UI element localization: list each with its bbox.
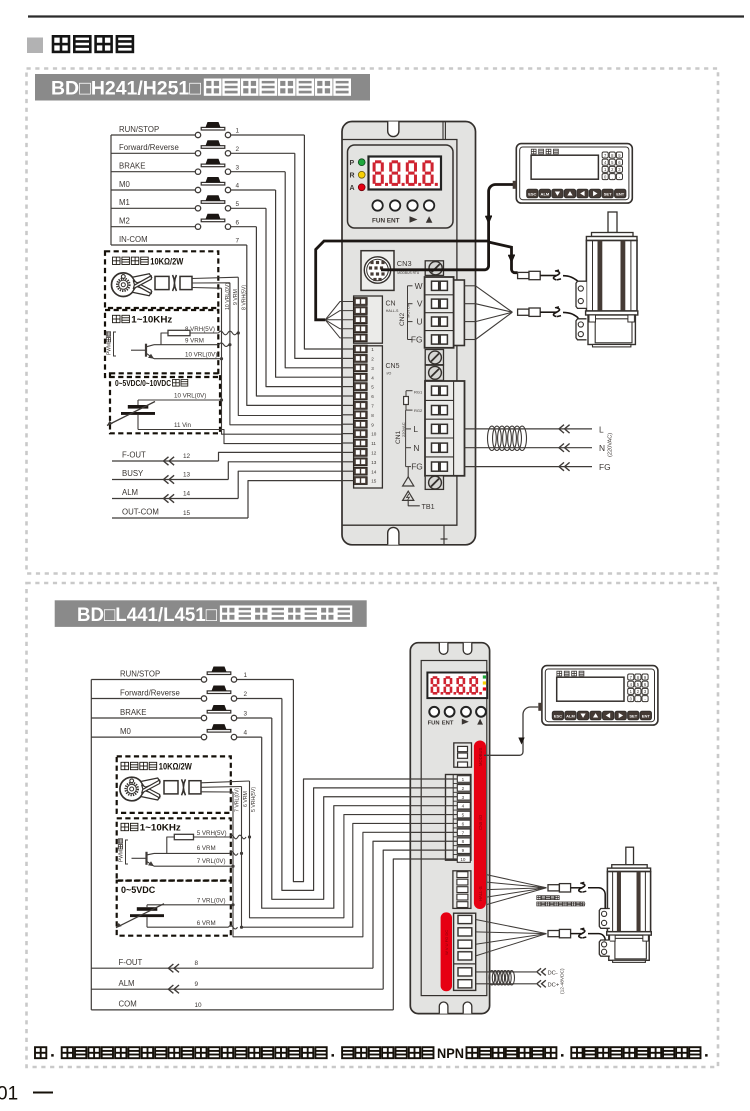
svg-text:10: 10 xyxy=(460,857,466,862)
svg-text:N: N xyxy=(599,443,605,453)
svg-text:CN5: CN5 xyxy=(386,363,400,370)
svg-text:HALL-S: HALL-S xyxy=(478,886,483,901)
svg-text:1: 1 xyxy=(244,672,248,679)
svg-text:12: 12 xyxy=(183,453,191,460)
svg-text:PWM: PWM xyxy=(119,850,125,862)
svg-text:1~10KHz: 1~10KHz xyxy=(131,315,172,325)
svg-text:FG: FG xyxy=(411,335,423,345)
svg-text:RG2: RG2 xyxy=(414,408,423,413)
svg-text:OUT-COM: OUT-COM xyxy=(122,508,159,517)
svg-text:BD□L441/L451□: BD□L441/L451□ xyxy=(77,604,217,626)
svg-text:PWM: PWM xyxy=(107,343,113,355)
svg-text:0v: 0v xyxy=(581,902,586,907)
svg-text:13: 13 xyxy=(371,460,377,465)
svg-text:7 VRL(0V): 7 VRL(0V) xyxy=(197,858,226,865)
svg-text:(12-48VDC): (12-48VDC) xyxy=(560,968,566,994)
svg-text:2: 2 xyxy=(244,691,248,698)
svg-text:10: 10 xyxy=(371,432,377,437)
svg-text:I/O: I/O xyxy=(387,371,392,375)
svg-text:14: 14 xyxy=(371,469,377,474)
svg-text:Forward/Reverse: Forward/Reverse xyxy=(119,143,179,152)
svg-text:IN-COM: IN-COM xyxy=(119,235,148,244)
svg-text:FG: FG xyxy=(411,462,423,472)
svg-text:COM: COM xyxy=(119,1000,137,1009)
svg-text:MODBUS RTU: MODBUS RTU xyxy=(397,271,420,275)
svg-text:8 VRH(5V): 8 VRH(5V) xyxy=(185,326,215,333)
svg-text:15: 15 xyxy=(371,479,377,484)
svg-text:8: 8 xyxy=(195,960,199,967)
svg-text:10: 10 xyxy=(195,1002,203,1009)
svg-text:6 VRM: 6 VRM xyxy=(197,920,216,927)
svg-text:3: 3 xyxy=(244,711,248,718)
svg-text:7: 7 xyxy=(462,830,465,835)
svg-text:01: 01 xyxy=(0,1084,18,1105)
svg-text:9: 9 xyxy=(371,422,374,427)
svg-text:10 VRL(0V): 10 VRL(0V) xyxy=(225,283,231,310)
svg-text:1: 1 xyxy=(371,347,374,352)
svg-text:MODBUS: MODBUS xyxy=(478,747,483,766)
svg-text:7 VRL(0V): 7 VRL(0V) xyxy=(235,788,241,812)
svg-text:5: 5 xyxy=(371,385,374,390)
svg-text:M1: M1 xyxy=(119,198,130,207)
svg-text:W V U FG DC: W V U FG DC xyxy=(444,930,449,955)
svg-text:ALM: ALM xyxy=(119,979,135,988)
svg-text:F-OUT: F-OUT xyxy=(119,958,143,967)
svg-text:5 VRH(5V): 5 VRH(5V) xyxy=(251,787,257,812)
svg-text:15: 15 xyxy=(183,510,191,517)
svg-text:14: 14 xyxy=(183,491,191,498)
svg-text:RUN/STOP: RUN/STOP xyxy=(119,125,159,134)
svg-text:8: 8 xyxy=(371,413,374,418)
svg-text:11: 11 xyxy=(371,441,376,446)
svg-text:DC+: DC+ xyxy=(548,983,560,989)
svg-text:F-OUT: F-OUT xyxy=(122,451,146,460)
svg-text:ENT: ENT xyxy=(442,721,454,727)
svg-text:U: U xyxy=(416,317,422,327)
svg-text:3: 3 xyxy=(236,164,240,171)
svg-text:10 VRL(0V): 10 VRL(0V) xyxy=(174,393,206,400)
svg-text:W: W xyxy=(415,281,423,291)
svg-text:220VAC: 220VAC xyxy=(401,422,406,437)
svg-text:9: 9 xyxy=(195,981,199,988)
svg-text:1~10KHz: 1~10KHz xyxy=(140,823,181,833)
svg-text:P: P xyxy=(350,160,355,167)
svg-text:4: 4 xyxy=(244,730,248,737)
svg-text:.: . xyxy=(612,174,613,179)
svg-text:0~5VDC: 0~5VDC xyxy=(121,885,156,895)
svg-text:DC-: DC- xyxy=(548,971,558,977)
svg-text:ENT: ENT xyxy=(387,218,400,225)
svg-text:7 VRL(0V): 7 VRL(0V) xyxy=(197,897,226,904)
svg-text:12: 12 xyxy=(371,451,377,456)
svg-text:4: 4 xyxy=(462,804,465,809)
svg-text:7: 7 xyxy=(371,404,374,409)
svg-text:5 VRH(5V): 5 VRH(5V) xyxy=(197,830,227,837)
svg-text:BRAKE: BRAKE xyxy=(119,162,145,171)
svg-text:L: L xyxy=(413,424,418,434)
svg-text:CN: CN xyxy=(386,301,396,308)
svg-text:ALM: ALM xyxy=(122,488,138,497)
svg-text:M0: M0 xyxy=(119,180,130,189)
svg-text:TB1: TB1 xyxy=(422,502,435,511)
svg-text:BD□H241/H251□: BD□H241/H251□ xyxy=(51,78,201,100)
svg-text:FUN: FUN xyxy=(372,218,386,225)
svg-text:2: 2 xyxy=(371,357,374,362)
svg-text:8: 8 xyxy=(462,839,465,844)
svg-text:8 VRH(5V): 8 VRH(5V) xyxy=(242,285,248,310)
svg-text:6: 6 xyxy=(462,821,465,826)
svg-text:9 VRM: 9 VRM xyxy=(185,338,204,345)
svg-text:ENT: ENT xyxy=(642,713,651,718)
svg-text:FG: FG xyxy=(599,462,611,472)
svg-text:ESC: ESC xyxy=(528,191,536,196)
svg-text:NPN: NPN xyxy=(437,1046,464,1061)
svg-text:10KΩ/2W: 10KΩ/2W xyxy=(159,762,192,772)
svg-text:2: 2 xyxy=(462,786,465,791)
svg-text:ENT: ENT xyxy=(616,191,625,196)
svg-text:BRAKE: BRAKE xyxy=(120,708,146,717)
svg-text:ALM: ALM xyxy=(541,191,550,196)
svg-text:SET: SET xyxy=(604,191,612,196)
svg-text:6: 6 xyxy=(371,394,374,399)
svg-text:13: 13 xyxy=(183,472,191,479)
svg-text:6 VRM: 6 VRM xyxy=(243,791,249,807)
svg-text:11 Vin: 11 Vin xyxy=(174,422,192,429)
svg-text:ALM: ALM xyxy=(566,713,575,718)
svg-text:CN5 I/O: CN5 I/O xyxy=(478,814,483,830)
svg-text:Forward/Reverse: Forward/Reverse xyxy=(120,688,180,697)
svg-text:A: A xyxy=(350,185,355,192)
svg-text:V: V xyxy=(417,299,423,309)
svg-text:MOTOR: MOTOR xyxy=(406,303,411,318)
svg-text:.: . xyxy=(637,696,638,701)
svg-text:RG1: RG1 xyxy=(414,390,423,395)
svg-text:M0: M0 xyxy=(120,727,131,736)
svg-text:M2: M2 xyxy=(119,217,130,226)
svg-text:(220VAC): (220VAC) xyxy=(608,433,614,457)
svg-text:HALL-S: HALL-S xyxy=(386,309,399,313)
svg-text:SET: SET xyxy=(629,713,637,718)
svg-text:FUN: FUN xyxy=(428,721,440,727)
svg-text:R: R xyxy=(350,173,355,180)
svg-text:1: 1 xyxy=(236,128,240,135)
svg-text:ESC: ESC xyxy=(554,713,562,718)
svg-text:0~5VDC/0~10VDC: 0~5VDC/0~10VDC xyxy=(115,378,171,388)
svg-text:RUN/STOP: RUN/STOP xyxy=(120,669,160,678)
svg-text:1: 1 xyxy=(462,777,465,782)
svg-text:7: 7 xyxy=(236,238,240,245)
svg-text:4: 4 xyxy=(371,375,374,380)
svg-text:L: L xyxy=(599,424,604,434)
svg-text:9: 9 xyxy=(462,848,465,853)
svg-text:6 VRM: 6 VRM xyxy=(197,845,216,852)
svg-text:6: 6 xyxy=(236,219,240,226)
svg-text:10 VRL(0V): 10 VRL(0V) xyxy=(185,352,217,359)
svg-text:9 VRM: 9 VRM xyxy=(233,289,239,305)
svg-text:10KΩ/2W: 10KΩ/2W xyxy=(150,256,183,266)
svg-text:BUSY: BUSY xyxy=(122,469,144,478)
svg-text:3: 3 xyxy=(371,366,374,371)
svg-text:2: 2 xyxy=(236,146,240,153)
svg-text:N: N xyxy=(413,443,419,453)
svg-text:5: 5 xyxy=(236,201,240,208)
svg-text:4: 4 xyxy=(236,183,240,190)
svg-text:3: 3 xyxy=(462,795,465,800)
svg-text:5: 5 xyxy=(462,813,465,818)
svg-text:CN3: CN3 xyxy=(397,259,412,268)
